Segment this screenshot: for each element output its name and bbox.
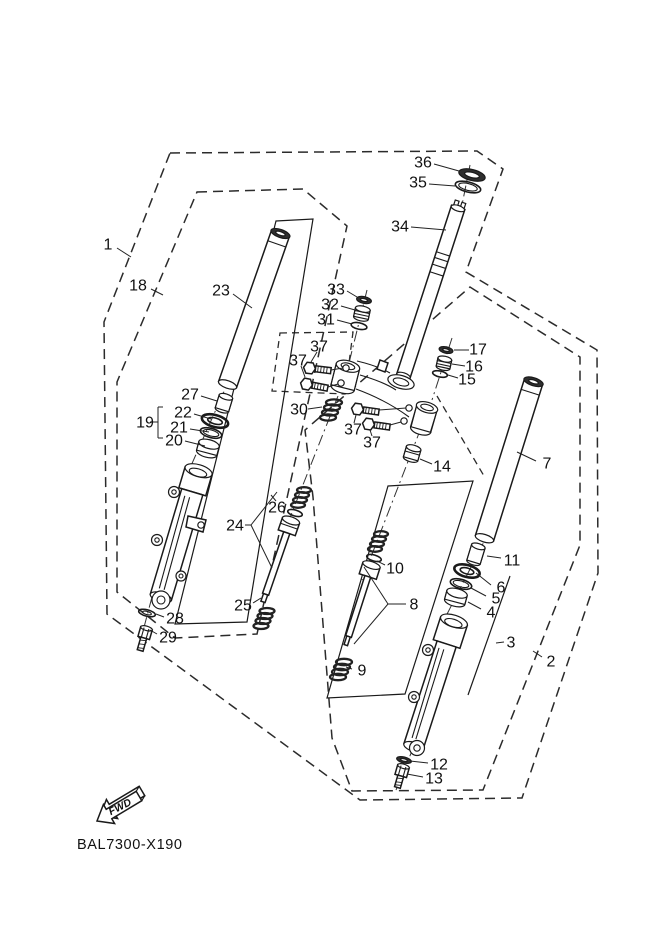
part-label-29: 29 <box>159 630 177 647</box>
right-outer-tube <box>399 611 469 755</box>
part-label-11: 11 <box>504 553 521 570</box>
leader-line-34 <box>411 227 446 230</box>
cap-bolt-32 <box>353 305 371 323</box>
cap-bolt-stack-left <box>351 295 373 331</box>
leader-line-28 <box>156 614 164 617</box>
slide-bush-20 <box>195 437 220 460</box>
leg-boss <box>409 692 420 703</box>
bolt-hole <box>343 365 349 371</box>
bush-27 <box>214 392 233 414</box>
leader-line-30 <box>308 407 322 409</box>
drain-bolt-29 <box>134 625 152 653</box>
leader-line-3 <box>496 642 504 643</box>
leg-boss <box>176 571 186 581</box>
rebound-spring-upper <box>291 487 311 508</box>
left-outer-tube <box>146 461 214 609</box>
damper-rod-24 <box>254 514 300 605</box>
bolt-hole <box>338 380 344 386</box>
right-clamp-boss <box>409 399 439 437</box>
rebound-spring-25 <box>254 608 275 629</box>
leader-line-6 <box>476 573 491 585</box>
leader-line-14 <box>420 459 432 464</box>
spring-upper <box>368 531 388 552</box>
part-label-4: 4 <box>487 605 496 622</box>
part-label-31: 31 <box>317 312 335 329</box>
leader-line-11 <box>487 556 501 558</box>
left-seal-stack <box>195 392 233 460</box>
part-label-34: 34 <box>391 219 409 236</box>
left-inner-tube-23 <box>217 226 291 391</box>
axle-eye <box>152 591 170 609</box>
cap-bolt-16 <box>436 355 453 372</box>
leg-boss <box>152 535 163 546</box>
part-label-26: 26 <box>268 500 286 517</box>
oring-17 <box>438 345 453 354</box>
leader-line-33 <box>347 291 357 297</box>
leader-line-32 <box>341 306 355 310</box>
part-label-10: 10 <box>386 561 404 578</box>
part-label-19: 19 <box>136 415 154 432</box>
oring-33 <box>356 295 372 305</box>
left-group-boundary-region-18 <box>117 189 347 638</box>
right-fork-centerline <box>444 530 490 620</box>
part-label-25: 25 <box>234 598 252 615</box>
part-label-2: 2 <box>547 654 556 671</box>
left-clamp-boss <box>330 358 361 396</box>
part-label-37: 37 <box>289 353 307 370</box>
part-label-17: 17 <box>469 342 487 359</box>
part-label-3: 3 <box>507 635 516 652</box>
leader-line-36 <box>434 164 459 171</box>
part-label-14: 14 <box>433 459 451 476</box>
leader-line-35 <box>429 184 455 186</box>
drain-bolt-13 <box>392 763 410 790</box>
exploded-view-front-fork: FWD BAL7300-X190 11823272221201928292426… <box>0 0 661 935</box>
part-label-13: 13 <box>425 771 443 788</box>
leader-line-16 <box>452 364 465 366</box>
boundary-regions <box>104 151 598 800</box>
part-label-23: 23 <box>212 283 230 300</box>
part-label-18: 18 <box>129 278 147 295</box>
part-label-20: 20 <box>165 433 183 450</box>
leader-line-5 <box>471 588 486 596</box>
pinch-bolt-37 <box>362 418 391 433</box>
leader-line-4 <box>468 602 481 609</box>
cap-bolt-stack-right <box>432 345 453 378</box>
part-label-27: 27 <box>181 387 199 404</box>
leader-line-15 <box>448 375 458 378</box>
part-label-37: 37 <box>344 422 362 439</box>
part-label-9: 9 <box>358 663 367 680</box>
left-assembly-box <box>175 219 313 624</box>
pinch-bolt-37 <box>300 378 329 394</box>
part-label-36: 36 <box>414 155 432 172</box>
pinch-bolt-37 <box>351 403 380 418</box>
bolt-hole <box>406 405 412 411</box>
bridge-ear <box>377 360 388 372</box>
leader-line-25 <box>253 598 261 603</box>
axle-eye <box>410 741 425 756</box>
leader-line-27 <box>201 396 217 401</box>
part-label-8: 8 <box>410 597 419 614</box>
part-label-15: 15 <box>458 372 476 389</box>
washer-31 <box>351 321 368 331</box>
part-label-1: 1 <box>104 237 113 254</box>
fwd-arrow: FWD <box>97 786 145 823</box>
part-label-28: 28 <box>166 611 184 628</box>
bolt-hole <box>401 418 407 424</box>
diagram-code: BAL7300-X190 <box>77 837 183 853</box>
damper-rod-8 <box>337 559 381 648</box>
leader-line-1 <box>117 248 131 257</box>
spacer-14 <box>403 443 422 463</box>
outer-boundary-region-1 <box>104 151 598 800</box>
leader-line-31 <box>337 320 352 324</box>
part-label-37: 37 <box>310 339 328 356</box>
part-label-30: 30 <box>290 402 308 419</box>
leg-boss <box>169 487 180 498</box>
leg-boss <box>423 645 434 656</box>
part-label-7: 7 <box>543 456 552 473</box>
part-label-35: 35 <box>409 175 427 192</box>
leader-line-13 <box>407 774 423 777</box>
spring-seat-30 <box>320 399 342 420</box>
part-label-37: 37 <box>363 435 381 452</box>
parts-diagram-page: FWD BAL7300-X190 11823272221201928292426… <box>0 0 661 935</box>
part-number-annotations: 1182327222120192829242625303332313737373… <box>104 155 556 788</box>
bush-11 <box>466 542 486 567</box>
gasket-28 <box>138 608 156 618</box>
part-label-24: 24 <box>226 518 244 535</box>
leader-line-18 <box>151 289 163 295</box>
leader-line-12 <box>410 761 428 763</box>
